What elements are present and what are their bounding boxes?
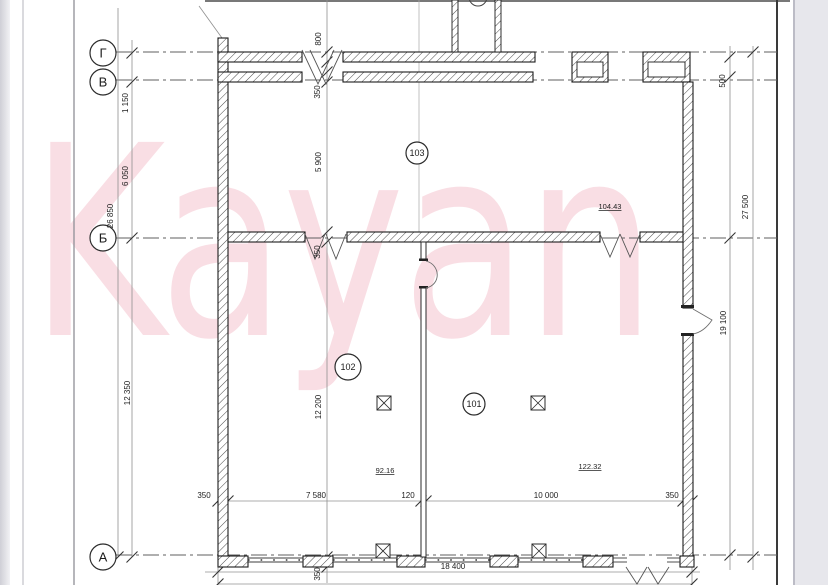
axis-bubbles: Г В Б А bbox=[90, 0, 487, 570]
wall-stub-top-1 bbox=[452, 0, 458, 52]
bottom-wall-corner-left bbox=[218, 556, 248, 567]
wall-axis-v-mid bbox=[343, 72, 533, 82]
door-swing-right-wall bbox=[693, 309, 712, 334]
exterior-wall-left bbox=[218, 38, 228, 556]
dim-left-6050: 6 050 bbox=[121, 165, 130, 186]
dimension-lines bbox=[118, 0, 753, 585]
partition-wall-lower bbox=[421, 288, 426, 557]
room-labels: 103 104.43 102 92.16 101 122.32 bbox=[335, 142, 621, 475]
exterior-wall-right-upper bbox=[683, 82, 693, 308]
dimension-ticks bbox=[113, 47, 759, 585]
room-area-103: 104.43 bbox=[599, 202, 622, 211]
wall-axis-v-left bbox=[218, 72, 302, 82]
bottom-wall-pier-4 bbox=[583, 556, 613, 567]
dim-int-350c: 350 bbox=[313, 567, 322, 581]
wall-axis-g-left bbox=[218, 52, 302, 62]
entrance-door-marks bbox=[626, 567, 647, 584]
dim-int-350b: 350 bbox=[313, 245, 322, 259]
bottom-wall-pier-3 bbox=[490, 556, 518, 567]
column-icon bbox=[377, 396, 391, 410]
doors bbox=[419, 259, 712, 337]
dim-bottom-120: 120 bbox=[401, 491, 415, 500]
column-markers bbox=[376, 396, 546, 558]
column-icon bbox=[376, 544, 390, 558]
door-swing-partition bbox=[426, 261, 437, 288]
axis-label-a: А bbox=[99, 550, 108, 565]
wall-opening-break-marks bbox=[302, 50, 669, 584]
dim-bottom-total-18400: 18 400 bbox=[441, 562, 466, 571]
bottom-wall-corner-right bbox=[680, 556, 694, 567]
dim-right-500: 500 bbox=[718, 74, 727, 88]
dim-int-350a: 350 bbox=[313, 85, 322, 99]
axis-label-b: Б bbox=[99, 231, 108, 246]
scanned-floor-plan-page: Kayan bbox=[0, 0, 828, 585]
column-icon bbox=[532, 544, 546, 558]
dim-bottom-7580: 7 580 bbox=[306, 491, 327, 500]
dim-right-total-27500: 27 500 bbox=[741, 194, 750, 219]
dimension-labels-right: 500 27 500 19 100 bbox=[718, 74, 750, 335]
axis-label-g: Г bbox=[99, 46, 106, 61]
room-number-103: 103 bbox=[409, 148, 424, 158]
dim-left-1150: 1 150 bbox=[121, 92, 130, 113]
dim-right-19100: 19 100 bbox=[719, 310, 728, 335]
dim-bottom-350l: 350 bbox=[197, 491, 211, 500]
bottom-wall-pier-1 bbox=[303, 556, 333, 567]
dim-int-800: 800 bbox=[314, 32, 323, 46]
sheet-frame-lines bbox=[23, 0, 777, 585]
axis-label-v: В bbox=[99, 75, 108, 90]
exterior-wall-right-lower bbox=[683, 335, 693, 556]
room-area-102: 92.16 bbox=[376, 466, 395, 475]
partition-wall-upper bbox=[421, 242, 426, 260]
walls bbox=[218, 0, 694, 567]
wall-axis-g-mid bbox=[343, 52, 535, 62]
dim-int-12200: 12 200 bbox=[314, 394, 323, 419]
axis-bubble-top-clipped bbox=[469, 0, 487, 6]
floor-plan-svg: Г В Б А 103 104.43 102 92.16 101 122.32 … bbox=[0, 0, 828, 585]
room-number-101: 101 bbox=[466, 399, 481, 409]
dim-left-total-26850: 26 850 bbox=[106, 203, 115, 228]
wall-axis-b-right bbox=[640, 232, 683, 242]
room-area-101: 122.32 bbox=[579, 462, 602, 471]
wall-axis-b-mid bbox=[347, 232, 600, 242]
dim-int-5900: 5 900 bbox=[314, 151, 323, 172]
wall-stub-top-2 bbox=[495, 0, 501, 52]
dim-bottom-350r: 350 bbox=[665, 491, 679, 500]
column-icon bbox=[531, 396, 545, 410]
axis-grid-lines bbox=[116, 52, 777, 555]
room-number-102: 102 bbox=[340, 362, 355, 372]
bottom-wall-pier-2 bbox=[397, 556, 425, 567]
dim-bottom-10000: 10 000 bbox=[534, 491, 559, 500]
dim-left-12350: 12 350 bbox=[123, 380, 132, 405]
wall-axis-b-left bbox=[228, 232, 305, 242]
